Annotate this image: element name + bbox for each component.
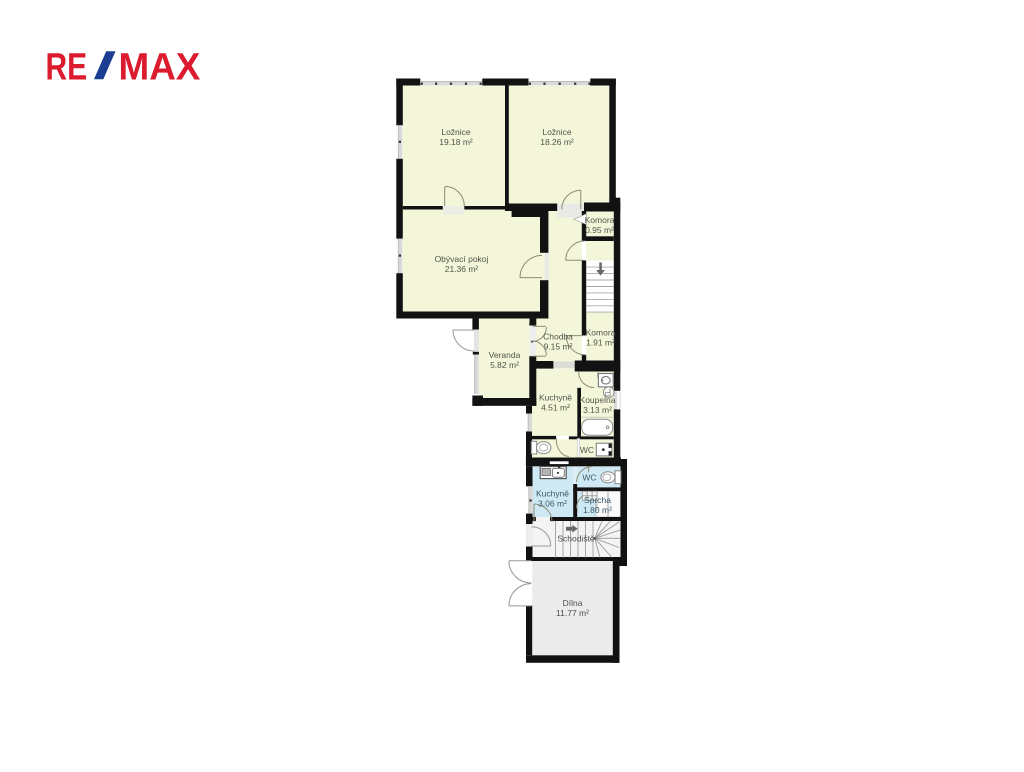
svg-text:11.77 m²: 11.77 m² [556, 608, 589, 618]
svg-text:19.18 m²: 19.18 m² [439, 137, 473, 147]
svg-text:1.80 m²: 1.80 m² [583, 505, 612, 515]
svg-text:Kuchyně: Kuchyně [536, 489, 569, 499]
svg-text:WC: WC [582, 473, 596, 483]
svg-text:WC: WC [580, 445, 594, 455]
svg-text:0.95 m²: 0.95 m² [585, 225, 614, 235]
svg-text:9.15 m²: 9.15 m² [544, 342, 573, 352]
svg-text:Koupelna: Koupelna [580, 395, 616, 405]
svg-text:5.82 m²: 5.82 m² [490, 360, 519, 370]
svg-text:3.13 m²: 3.13 m² [583, 405, 612, 415]
svg-text:Schodiště: Schodiště [557, 533, 595, 543]
svg-text:21.36 m²: 21.36 m² [445, 264, 479, 274]
svg-text:Ložnice: Ložnice [542, 127, 572, 137]
svg-text:Dílna: Dílna [563, 598, 583, 608]
svg-text:Ložnice: Ložnice [441, 127, 471, 137]
svg-text:Komora: Komora [585, 215, 615, 225]
svg-text:4.51 m²: 4.51 m² [541, 403, 570, 413]
svg-text:MAX: MAX [119, 45, 201, 88]
svg-text:1.91 m²: 1.91 m² [586, 338, 615, 348]
svg-text:Sprcha: Sprcha [584, 495, 611, 505]
svg-text:Chodba: Chodba [543, 332, 573, 342]
svg-text:3.06 m²: 3.06 m² [538, 499, 567, 509]
svg-text:Kuchyně: Kuchyně [539, 393, 572, 403]
svg-text:18.26 m²: 18.26 m² [540, 137, 574, 147]
svg-text:RE: RE [46, 46, 88, 88]
svg-text:Veranda: Veranda [489, 350, 521, 360]
svg-text:Komora: Komora [586, 328, 616, 338]
svg-text:Obývací pokoj: Obývací pokoj [435, 254, 489, 264]
